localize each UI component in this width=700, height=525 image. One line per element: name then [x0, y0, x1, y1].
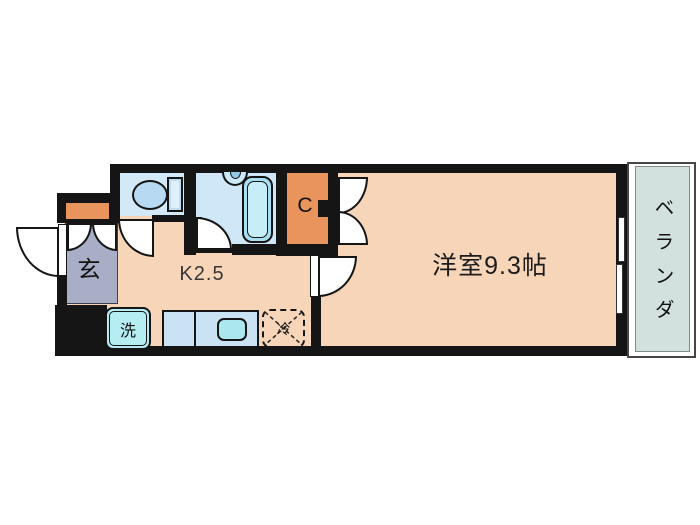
- main-room-label: 洋室9.3帖: [380, 246, 600, 282]
- entrance-door-leaf: [58, 224, 67, 276]
- window-right-upper: [618, 217, 625, 262]
- veranda-label: ベランダ: [648, 185, 677, 333]
- wall-toilet-left: [110, 164, 120, 222]
- toilet-tank-icon: [167, 177, 183, 212]
- refrigerator-label: 冷: [277, 319, 291, 339]
- wall-left-lower: [57, 275, 67, 306]
- window-right-lower: [616, 264, 623, 314]
- closet-label: C: [286, 194, 324, 218]
- entrance-door-arc: [16, 227, 59, 277]
- bathtub-icon: [242, 176, 273, 243]
- toilet-tank-inner: [171, 181, 179, 208]
- wall-bottom-left-block: [55, 305, 107, 356]
- veranda-area: ベランダ: [635, 166, 690, 352]
- toilet-bowl-icon: [132, 180, 168, 210]
- wall-closet-bottom: [276, 244, 338, 256]
- wall-toilet-bottom: [152, 215, 184, 222]
- wall-kitchen-divider: [311, 296, 321, 356]
- washer-label: 洗: [120, 317, 136, 341]
- wall-closet-right: [328, 164, 338, 251]
- entrance-label: 玄: [67, 250, 111, 284]
- kitchen-label: K2.5: [166, 263, 238, 286]
- bathtub-inner: [247, 181, 268, 238]
- washer-box: 洗: [105, 307, 151, 350]
- floor-plan: ベランダ 洗 冷 玄 K2.5 洋室9.3帖 C: [0, 0, 700, 525]
- refrigerator-box: 冷: [262, 309, 305, 348]
- kitchen-sink-icon: [217, 318, 247, 341]
- kitchen-counter-divider: [194, 310, 196, 348]
- shoe-cabinet-front: [66, 203, 109, 219]
